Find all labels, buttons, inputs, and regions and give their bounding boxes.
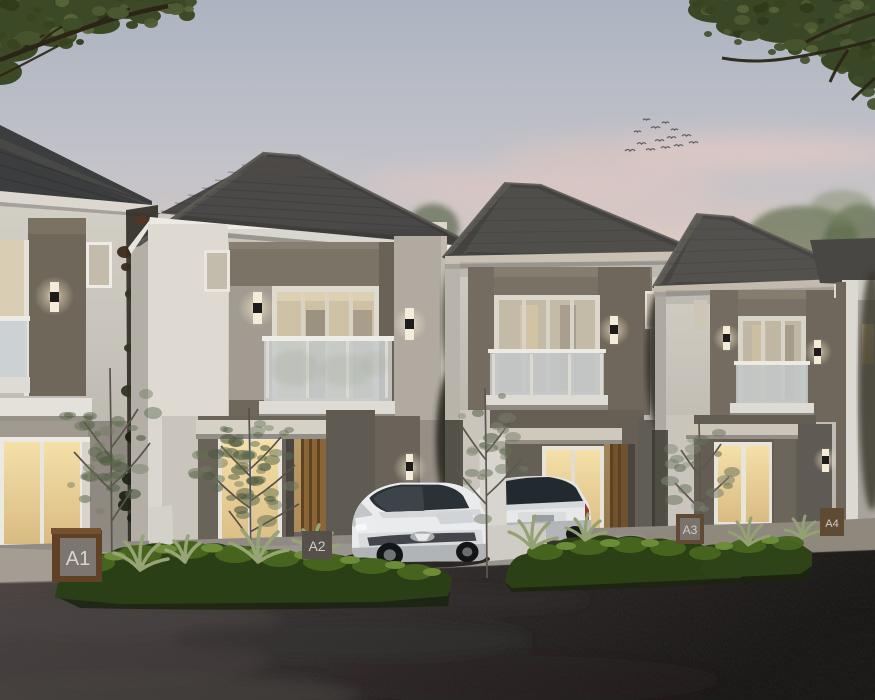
svg-text:A4: A4	[825, 518, 838, 530]
svg-text:A3: A3	[683, 523, 698, 537]
svg-text:A2: A2	[308, 538, 325, 554]
svg-text:A1: A1	[66, 548, 90, 570]
